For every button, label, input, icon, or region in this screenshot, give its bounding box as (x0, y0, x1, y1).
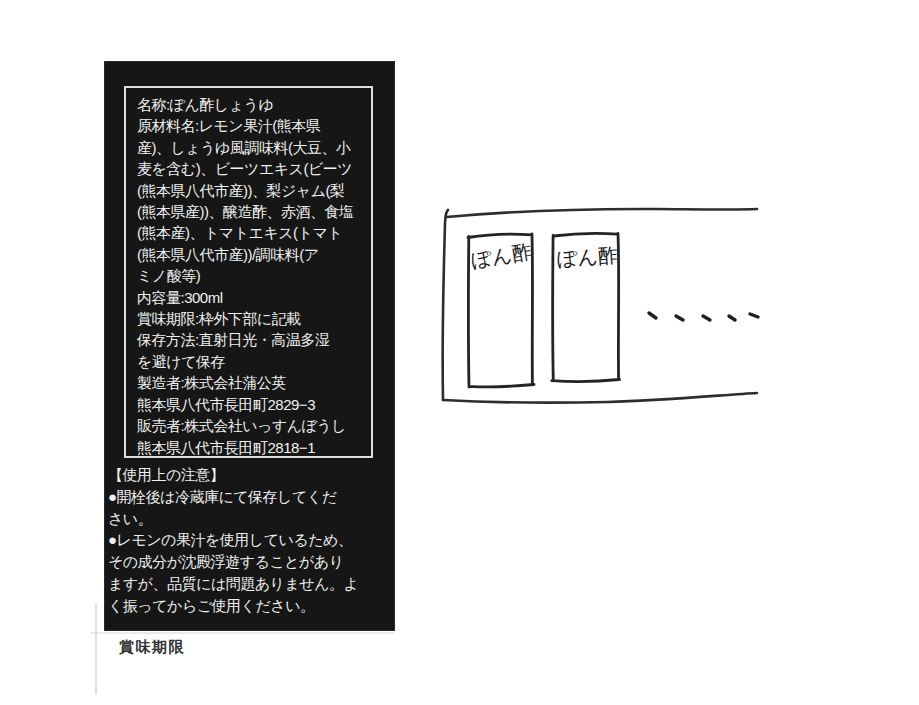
ingredient-info-box: 名称:ぽん酢しょうゆ 原材料名:レモン果汁(熊本県 産)、しょうゆ風調味料(大豆… (124, 86, 373, 458)
hand-drawn-shelf-sketch: ぽん酢 ぽん酢 (428, 196, 778, 416)
info-line-expiry-note: 賞味期限:枠外下部に記載 (137, 308, 371, 329)
info-line-manufacturer: 製造者:株式会社蒲公英 (137, 372, 371, 393)
bottle1-handwritten-label: ぽん酢 (470, 240, 534, 271)
info-line-storage-2: を避けて保存 (137, 351, 371, 372)
scan-edge-horizontal (90, 632, 394, 634)
scan-edge-vertical (95, 604, 97, 694)
product-label: 名称:ぽん酢しょうゆ 原材料名:レモン果汁(熊本県 産)、しょうゆ風調味料(大豆… (105, 62, 394, 630)
info-line-name: 名称:ぽん酢しょうゆ (137, 94, 371, 115)
info-line-seller-address: 熊本県八代市長田町2818−1 (137, 437, 371, 458)
expiry-date-caption: 賞味期限 (119, 638, 185, 657)
info-line-ingredients-4: (熊本県八代市産))、梨ジャム(梨 (137, 180, 371, 201)
info-line-seller: 販売者:株式会社いっすんぼうし (137, 415, 371, 436)
info-line-ingredients-1: 原材料名:レモン果汁(熊本県 (137, 115, 371, 136)
sketch-strip-left-line (443, 210, 448, 400)
scanned-page: 名称:ぽん酢しょうゆ 原材料名:レモン果汁(熊本県 産)、しょうゆ風調味料(大豆… (0, 0, 919, 705)
ellipsis-dot-1 (649, 313, 656, 318)
sketch-strip-bottom-line (443, 393, 757, 403)
info-line-ingredients-2: 産)、しょうゆ風調味料(大豆、小 (137, 137, 371, 158)
caution-heading: 【使用上の注意】 (108, 464, 393, 486)
caution-line-6: く振ってからご使用ください。 (108, 595, 393, 617)
ellipsis-dot-5 (750, 314, 758, 317)
usage-caution: 【使用上の注意】 ●開栓後は冷蔵庫にて保存してくだ さい。 ●レモンの果汁を使用… (105, 464, 393, 617)
ellipsis-dot-4 (729, 316, 735, 320)
info-line-ingredients-8: ミノ酸等) (137, 265, 371, 286)
info-line-ingredients-3: 麦を含む)、ビーツエキス(ビーツ (137, 158, 371, 179)
caution-line-5: ますが、品質には問題ありません。よ (108, 573, 393, 595)
info-line-ingredients-6: (熊本産)、トマトエキス(トマト (137, 222, 371, 243)
info-line-storage-1: 保存方法:直射日光・高温多湿 (137, 329, 371, 350)
caution-line-4: その成分が沈殿浮遊することがあり (108, 551, 393, 573)
ellipsis-dot-3 (703, 316, 710, 320)
caution-line-1: ●開栓後は冷蔵庫にて保存してくだ (108, 486, 393, 508)
info-line-manufacturer-address: 熊本県八代市長田町2829−3 (137, 394, 371, 415)
caution-line-3: ●レモンの果汁を使用しているため、 (108, 529, 393, 551)
sketch-strip-top-line (447, 209, 757, 217)
bottle2-handwritten-label: ぽん酢 (556, 244, 618, 270)
info-line-volume: 内容量:300ml (137, 287, 371, 308)
info-line-ingredients-7: (熊本県八代市産))/調味料(ア (137, 244, 371, 265)
ellipsis-dot-2 (676, 316, 683, 320)
caution-line-2: さい。 (108, 508, 393, 530)
info-line-ingredients-5: (熊本県産))、醸造酢、赤酒、食塩 (137, 201, 371, 222)
